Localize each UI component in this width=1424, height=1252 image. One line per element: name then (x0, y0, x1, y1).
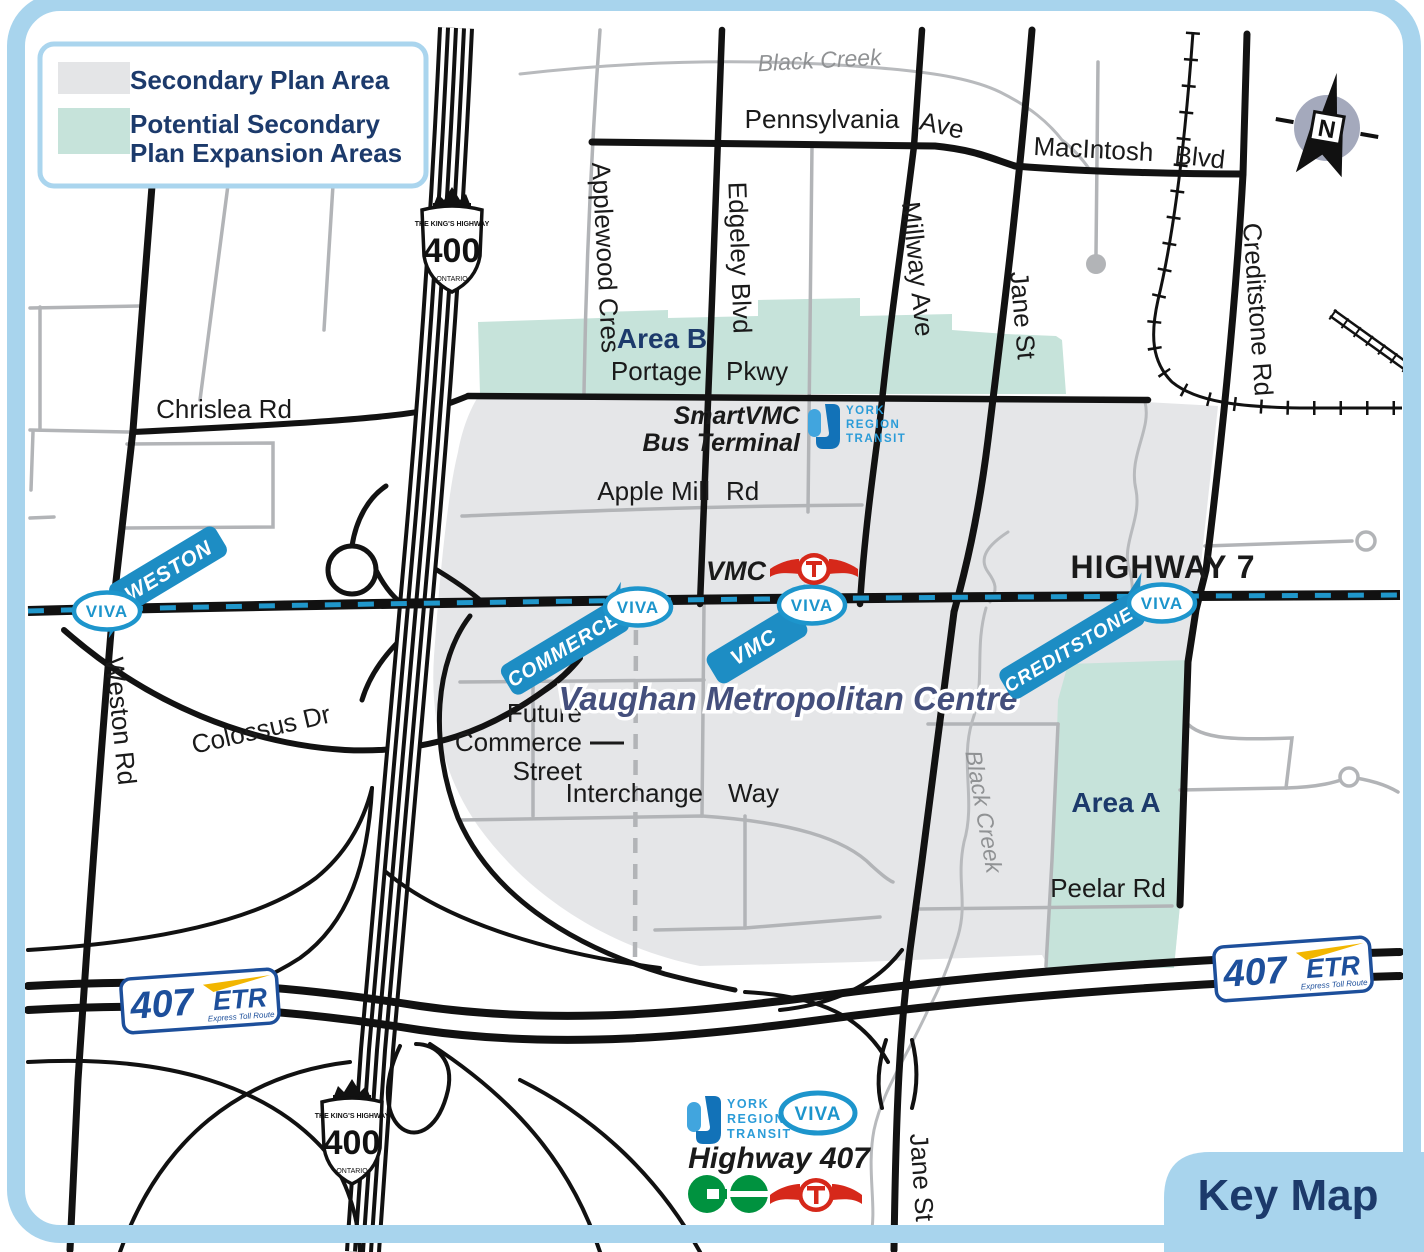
label-future-2: Commerce (455, 727, 582, 757)
viva-oval-creditstone-word: VIVA (1141, 594, 1183, 613)
label-vaughan-metropolitan-centre: Vaughan Metropolitan Centre (559, 680, 1018, 717)
legend-label-expansion-1: Potential Secondary (130, 109, 380, 139)
hwy400-shield-top-kings: THE KING'S HIGHWAY (415, 221, 490, 228)
etr-logo-right-407: 407 (1221, 949, 1290, 996)
go-logo-o-slot (730, 1191, 768, 1197)
hwy400-shield-top-ontario: ONTARIO (436, 276, 468, 283)
transit-logo-cluster: YORK REGION TRANSIT VIVA Highway 407 (687, 1093, 871, 1213)
etr-logo-right: 407 ETR Express Toll Route (1213, 937, 1372, 1002)
label-pennsylvania: Pennsylvania (745, 104, 900, 134)
label-edgeley: Edgeley Blvd (722, 181, 757, 334)
key-map-canvas: Black Creek Pennsylvania Ave MacIntosh B… (0, 0, 1424, 1252)
viva-logo-bottom-word: VIVA (795, 1104, 842, 1125)
legend: Secondary Plan Area Potential Secondary … (40, 44, 426, 186)
label-rd: Rd (726, 476, 759, 506)
viva-oval-vmc-word: VIVA (791, 596, 833, 615)
viva-oval-commerce: VIVA (605, 589, 671, 626)
label-chrislea: Chrislea Rd (156, 394, 292, 424)
viva-oval-vmc: VIVA (779, 587, 845, 624)
label-area-a: Area A (1071, 787, 1160, 818)
legend-label-plan-area: Secondary Plan Area (130, 65, 390, 95)
go-logo-g-bar (719, 1189, 727, 1199)
culdesac-ring-1 (1357, 532, 1375, 550)
highway-407-label: Highway 407 (688, 1142, 871, 1175)
hwy400-shield-bottom-number: 400 (324, 1124, 381, 1162)
smartvmc-line1: SmartVMC (674, 402, 801, 430)
yrt-bottom-word-region: REGION (727, 1112, 785, 1126)
label-area-b: Area B (617, 323, 707, 354)
road-topleft-1 (30, 306, 140, 308)
etr-logo-left-407: 407 (128, 981, 197, 1028)
label-interchange: Interchange (566, 778, 703, 808)
legend-swatch-plan-area (58, 62, 130, 94)
road-topleft-4 (31, 432, 33, 490)
smartvmc-line2: Bus Terminal (643, 429, 802, 457)
yrt-word-york: YORK (846, 405, 885, 417)
road-topleft-5 (30, 517, 54, 518)
viva-oval-creditstone: VIVA (1129, 585, 1195, 622)
ttc-emblem-bar (806, 561, 822, 565)
label-apple-mill: Apple Mill (597, 476, 710, 506)
hwy400-shield-bottom-kings: THE KING'S HIGHWAY (315, 1113, 390, 1120)
viva-oval-weston-word: VIVA (86, 602, 128, 621)
label-blvd: Blvd (1173, 139, 1226, 174)
road-topleft-3 (30, 430, 130, 432)
key-map-page: Black Creek Pennsylvania Ave MacIntosh B… (0, 0, 1424, 1252)
label-macintosh: MacIntosh (1033, 131, 1154, 167)
yrt-word-transit: TRANSIT (846, 433, 906, 445)
viva-oval-commerce-word: VIVA (617, 598, 659, 617)
label-pkwy: Pkwy (726, 356, 788, 386)
yrt-bottom-word-york: YORK (727, 1097, 769, 1111)
viva-logo-bottom: VIVA (781, 1093, 855, 1133)
hwy400-shield-bottom-ontario: ONTARIO (336, 1168, 368, 1175)
label-highway-7: HIGHWAY 7 (1070, 549, 1255, 585)
label-peelar: Peelar Rd (1050, 873, 1166, 903)
legend-label-expansion-2: Plan Expansion Areas (130, 138, 402, 168)
vmc-subway-label: VMC (706, 556, 767, 586)
etr-logo-left: 407 ETR Express Toll Route (120, 969, 279, 1034)
culdesac-ring-2 (1340, 768, 1358, 786)
label-way: Way (728, 778, 779, 808)
ttc-bottom-emblem-bar (807, 1186, 825, 1191)
yrt-bottom-word-transit: TRANSIT (727, 1127, 792, 1141)
yrt-word-region: REGION (846, 419, 900, 431)
viva-oval-weston: VIVA (74, 593, 140, 630)
yrt-glyph-left (808, 409, 821, 437)
yrt-bottom-glyph-left (687, 1102, 701, 1132)
hwy400-shield-top-number: 400 (424, 232, 481, 270)
legend-swatch-expansion (58, 108, 130, 154)
road-portage (468, 396, 1148, 400)
label-jane-south: Jane St (904, 1132, 940, 1223)
culdesac-dot (1086, 254, 1106, 274)
key-map-title: Key Map (1198, 1171, 1379, 1220)
label-portage: Portage (611, 356, 702, 386)
